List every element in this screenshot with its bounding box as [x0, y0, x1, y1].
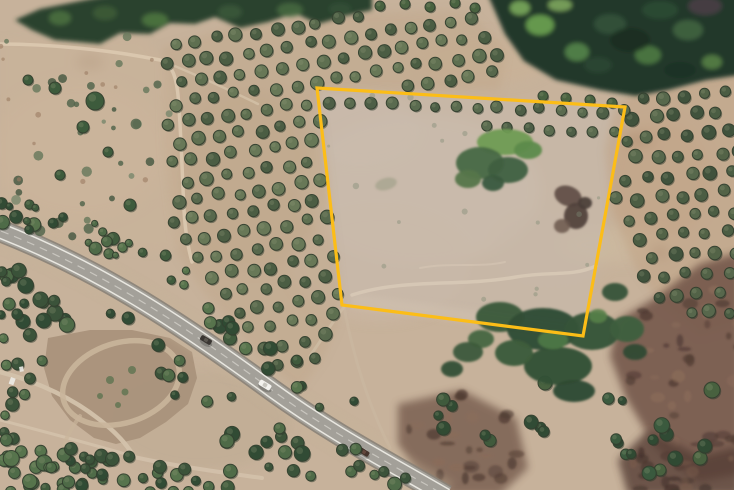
satellite-imagery	[0, 0, 734, 490]
satellite-map-view[interactable]	[0, 0, 734, 490]
